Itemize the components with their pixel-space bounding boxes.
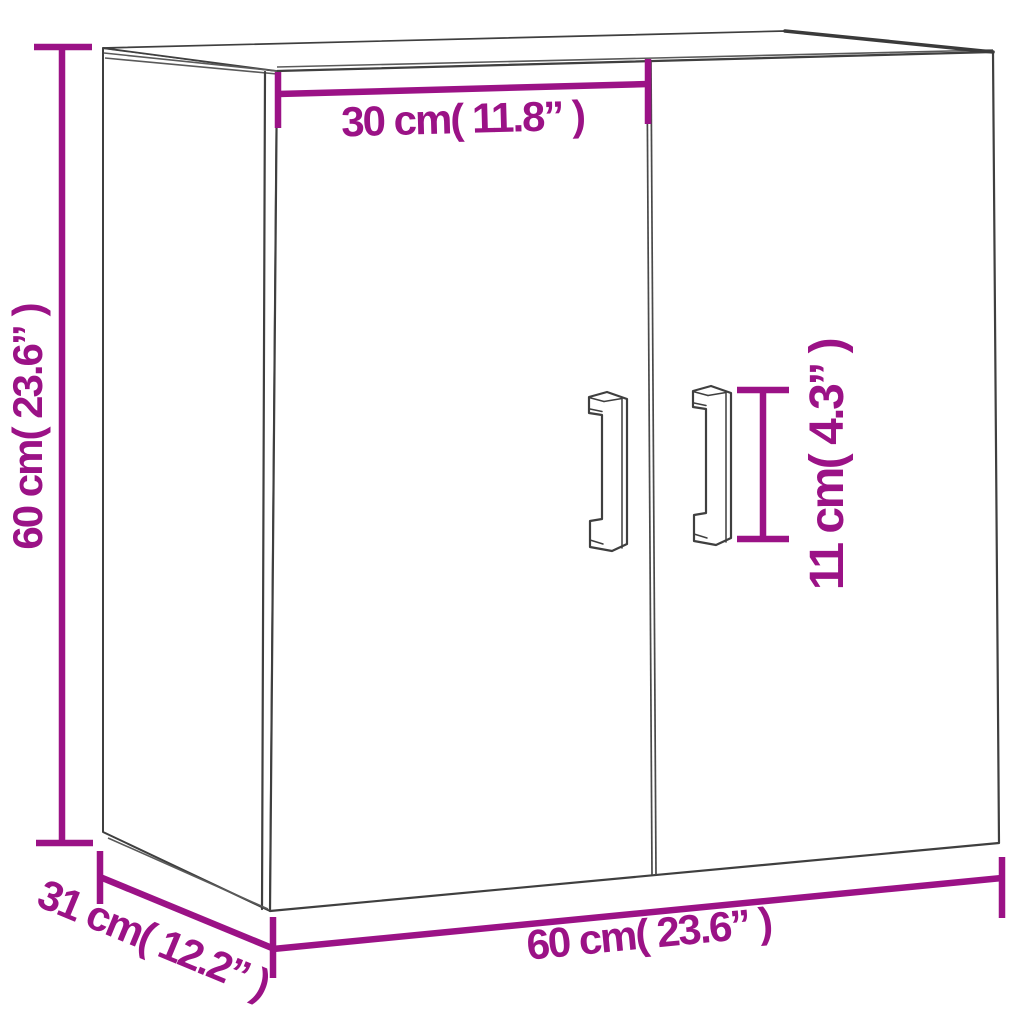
- diagram-canvas: 60 cm( 23.6” ) 30 cm( 11.8” ) 11 cm( 4.3…: [0, 0, 1024, 1024]
- handle-height-dimension-label: 11 cm( 4.3” ): [801, 339, 854, 590]
- cabinet-dimension-diagram: 60 cm( 23.6” ) 30 cm( 11.8” ) 11 cm( 4.3…: [0, 0, 1024, 1024]
- height-dimension-label: 60 cm( 23.6” ): [4, 304, 51, 549]
- cabinet-outline: [103, 31, 999, 911]
- door-width-dimension-label: 30 cm( 11.8” ): [341, 92, 585, 146]
- cabinet-front-face: [270, 52, 999, 911]
- cabinet-side-panel: [103, 48, 277, 911]
- width-dimension-label: 60 cm( 23.6” ): [524, 898, 773, 968]
